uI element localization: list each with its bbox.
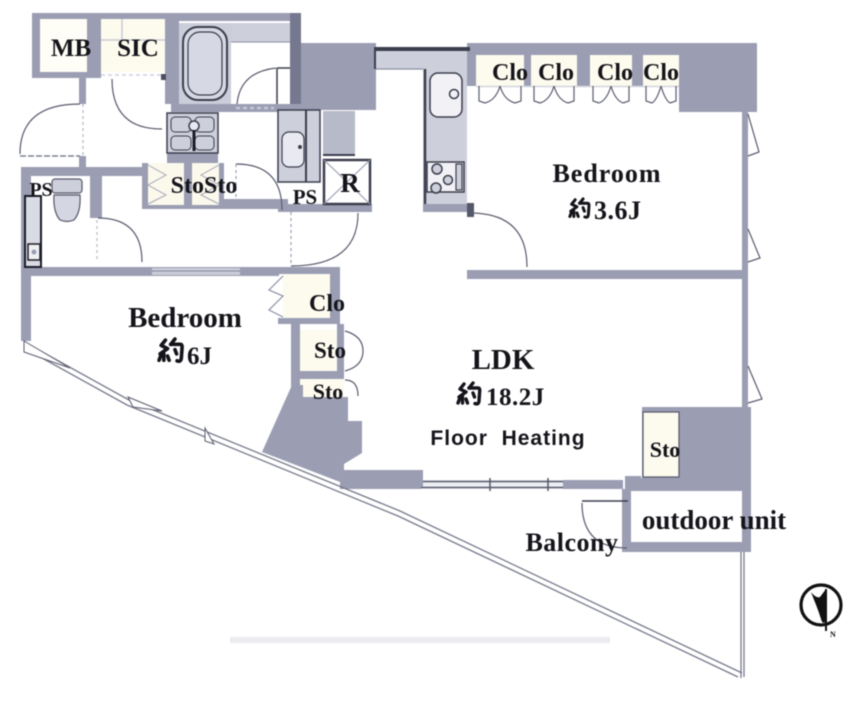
svg-text:PS: PS xyxy=(293,185,318,209)
svg-text:N: N xyxy=(830,630,836,639)
svg-text:StoSto: StoSto xyxy=(171,173,238,199)
svg-text:Floor Heating: Floor Heating xyxy=(430,427,585,450)
svg-text:6J: 6J xyxy=(187,343,212,370)
svg-text:Clo: Clo xyxy=(643,60,679,86)
svg-text:Bedroom: Bedroom xyxy=(552,159,661,188)
svg-text:SIC: SIC xyxy=(117,35,159,62)
svg-text:Balcony: Balcony xyxy=(525,528,618,557)
svg-text:18.2J: 18.2J xyxy=(486,384,545,411)
svg-text:Clo: Clo xyxy=(309,291,345,317)
svg-text:3.6J: 3.6J xyxy=(594,196,642,225)
svg-text:Sto: Sto xyxy=(313,379,344,404)
svg-text:MB: MB xyxy=(51,35,91,62)
svg-text:R: R xyxy=(340,168,360,198)
svg-text:Clo: Clo xyxy=(597,60,633,86)
svg-text:Clo: Clo xyxy=(538,60,574,86)
svg-text:outdoor unit: outdoor unit xyxy=(642,505,786,535)
svg-text:Bedroom: Bedroom xyxy=(128,302,242,334)
svg-text:LDK: LDK xyxy=(472,344,535,376)
svg-text:Clo: Clo xyxy=(492,60,528,86)
svg-text:PS: PS xyxy=(29,179,52,201)
svg-text:Sto: Sto xyxy=(314,338,346,363)
svg-text:Sto: Sto xyxy=(650,437,681,462)
